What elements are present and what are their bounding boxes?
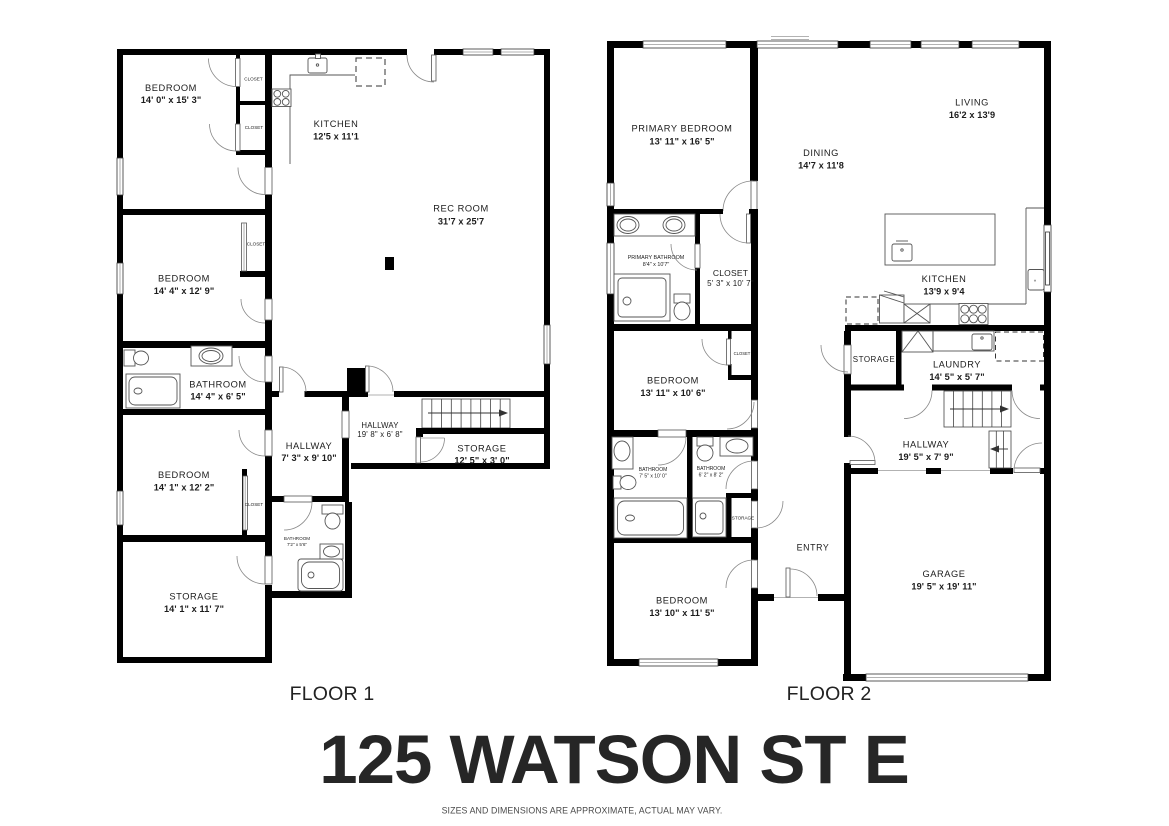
svg-text:CLOSET: CLOSET: [247, 242, 266, 247]
svg-text:16'2 x 13'9: 16'2 x 13'9: [949, 110, 995, 120]
svg-text:CLOSET: CLOSET: [713, 268, 748, 278]
svg-text:LAUNDRY: LAUNDRY: [933, 360, 981, 370]
svg-text:14' 1" x 12' 2": 14' 1" x 12' 2": [154, 483, 215, 493]
svg-text:BEDROOM: BEDROOM: [656, 596, 708, 606]
svg-text:7' 5" x 10' 0": 7' 5" x 10' 0": [639, 474, 667, 480]
svg-text:13' 11" x 10' 6": 13' 11" x 10' 6": [640, 388, 705, 398]
svg-text:12' 5" x 3' 0": 12' 5" x 3' 0": [454, 456, 509, 466]
svg-text:14'7 x 11'8: 14'7 x 11'8: [798, 161, 844, 171]
svg-text:CLOSET: CLOSET: [245, 125, 264, 130]
svg-text:6' 2" x 8' 2": 6' 2" x 8' 2": [699, 473, 724, 479]
svg-text:BATHROOM: BATHROOM: [639, 467, 668, 473]
svg-text:ENTRY: ENTRY: [797, 543, 830, 553]
svg-text:HALLWAY: HALLWAY: [286, 441, 333, 451]
svg-text:PRIMARY BEDROOM: PRIMARY BEDROOM: [632, 124, 733, 134]
svg-text:CLOSET: CLOSET: [734, 351, 751, 356]
svg-text:5' 3" x 10' 7": 5' 3" x 10' 7": [707, 279, 754, 288]
svg-text:BEDROOM: BEDROOM: [158, 274, 210, 284]
svg-text:8'4" x 10'7": 8'4" x 10'7": [643, 262, 670, 268]
svg-text:FLOOR 1: FLOOR 1: [290, 683, 375, 705]
svg-text:«: «: [1034, 278, 1037, 283]
svg-text:19' 8" x 6' 8": 19' 8" x 6' 8": [357, 430, 403, 439]
svg-text:BATHROOM: BATHROOM: [697, 466, 726, 472]
svg-text:STORAGE: STORAGE: [457, 444, 506, 454]
svg-text:7'2" x 5'6": 7'2" x 5'6": [287, 542, 307, 547]
svg-text:14' 1" x 11' 7": 14' 1" x 11' 7": [164, 604, 224, 614]
svg-text:LIVING: LIVING: [955, 98, 989, 108]
svg-text:13' 10" x 11' 5": 13' 10" x 11' 5": [649, 608, 714, 618]
svg-text:13' 11" x 16' 5": 13' 11" x 16' 5": [649, 137, 714, 147]
svg-text:14' 4" x 6' 5": 14' 4" x 6' 5": [190, 392, 245, 402]
svg-text:14' 5" x 5' 7": 14' 5" x 5' 7": [929, 372, 984, 382]
svg-text:14' 0" x 15' 3": 14' 0" x 15' 3": [141, 95, 202, 105]
svg-text:14' 4" x 12' 9": 14' 4" x 12' 9": [154, 286, 215, 296]
svg-text:BEDROOM: BEDROOM: [145, 83, 197, 93]
svg-text:SIZES AND DIMENSIONS ARE APPRO: SIZES AND DIMENSIONS ARE APPROXIMATE, AC…: [442, 806, 723, 816]
svg-text:19' 5" x 7' 9": 19' 5" x 7' 9": [898, 452, 953, 462]
svg-text:PRIMARY BATHROOM: PRIMARY BATHROOM: [628, 255, 685, 261]
svg-text:DINING: DINING: [803, 148, 839, 158]
svg-text:FLOOR 2: FLOOR 2: [787, 683, 872, 705]
svg-text:19' 5" x 19' 11": 19' 5" x 19' 11": [911, 582, 976, 592]
svg-text:STORAGE: STORAGE: [169, 592, 218, 602]
svg-text:KITCHEN: KITCHEN: [922, 274, 967, 284]
svg-text:GARAGE: GARAGE: [922, 569, 965, 579]
svg-text:13'9 x 9'4: 13'9 x 9'4: [923, 287, 965, 297]
svg-text:HALLWAY: HALLWAY: [903, 440, 950, 450]
svg-text:STORAGE: STORAGE: [732, 516, 754, 521]
svg-text:STORAGE: STORAGE: [853, 355, 895, 364]
svg-text:BEDROOM: BEDROOM: [647, 376, 699, 386]
svg-text:REC ROOM: REC ROOM: [433, 204, 489, 214]
svg-text:BATHROOM: BATHROOM: [284, 536, 310, 541]
svg-text:BATHROOM: BATHROOM: [189, 380, 246, 390]
svg-text:12'5 x 11'1: 12'5 x 11'1: [313, 132, 359, 142]
svg-text:125 WATSON ST E: 125 WATSON ST E: [319, 721, 909, 798]
svg-text:CLOSET: CLOSET: [244, 77, 263, 82]
svg-text:CLOSET: CLOSET: [245, 502, 264, 507]
svg-text:31'7 x 25'7: 31'7 x 25'7: [438, 217, 484, 227]
svg-text:7' 3" x 9' 10": 7' 3" x 9' 10": [281, 453, 336, 463]
svg-text:BEDROOM: BEDROOM: [158, 470, 210, 480]
svg-text:KITCHEN: KITCHEN: [314, 119, 359, 129]
svg-text:HALLWAY: HALLWAY: [361, 421, 399, 430]
